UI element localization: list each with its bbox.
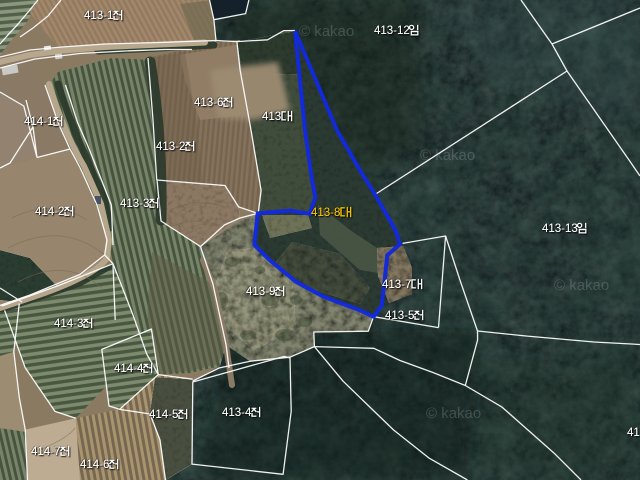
- svg-text:© kakao: © kakao: [554, 277, 609, 294]
- svg-text:413: 413: [262, 111, 281, 123]
- svg-text:414-5: 414-5: [149, 409, 178, 421]
- svg-text:413: 413: [627, 427, 640, 439]
- svg-text:© kakao: © kakao: [426, 405, 481, 422]
- svg-text:© kakao: © kakao: [299, 23, 354, 40]
- svg-text:413-1: 413-1: [84, 10, 113, 22]
- svg-text:414-7: 414-7: [31, 446, 60, 458]
- svg-text:413-12: 413-12: [374, 25, 410, 37]
- svg-text:413-7: 413-7: [382, 279, 411, 291]
- svg-text:413-3: 413-3: [120, 198, 149, 210]
- svg-text:414-1: 414-1: [24, 116, 53, 128]
- svg-text:413-2: 413-2: [156, 141, 185, 153]
- svg-text:414-2: 414-2: [35, 206, 64, 218]
- svg-text:413-13: 413-13: [542, 223, 578, 235]
- svg-text:413-5: 413-5: [385, 310, 414, 322]
- svg-text:413-4: 413-4: [222, 407, 252, 419]
- svg-text:413-9: 413-9: [246, 286, 275, 298]
- svg-text:414-6: 414-6: [80, 459, 109, 471]
- svg-text:413-6: 413-6: [194, 97, 223, 109]
- svg-text:414-3: 414-3: [54, 318, 83, 330]
- svg-text:© kakao: © kakao: [420, 147, 475, 164]
- svg-text:414-4: 414-4: [114, 363, 144, 375]
- svg-text:413-8: 413-8: [311, 207, 340, 219]
